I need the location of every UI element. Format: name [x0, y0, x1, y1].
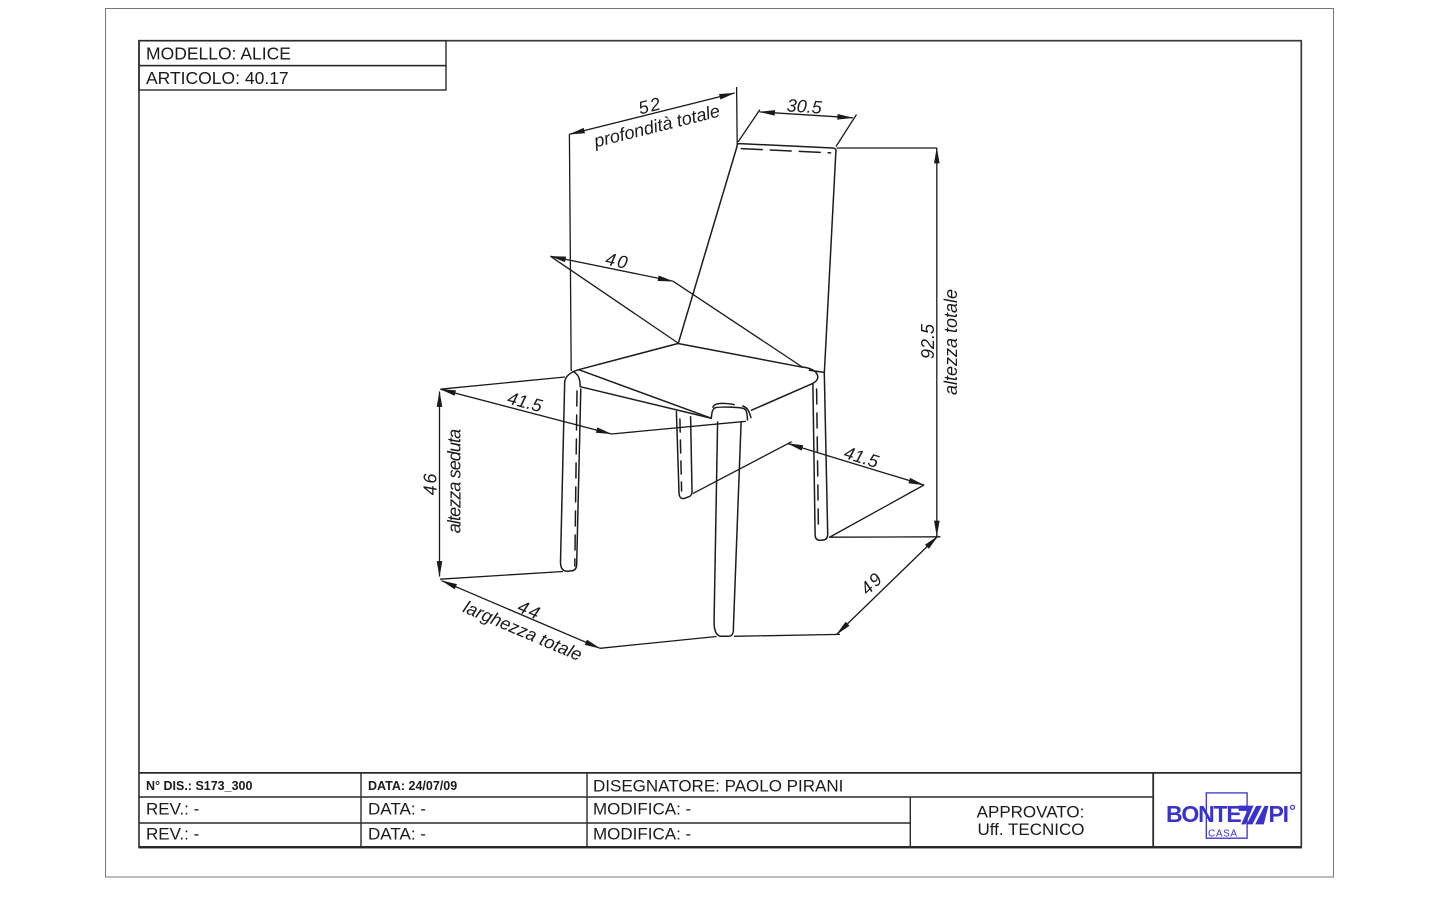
svg-text:DATA: -: DATA: - — [368, 800, 426, 819]
svg-text:DATA: 24/07/09: DATA: 24/07/09 — [368, 779, 457, 793]
svg-text:DATA: -: DATA: - — [368, 825, 426, 844]
svg-text:PI: PI — [1269, 801, 1288, 827]
svg-text:altezza seduta: altezza seduta — [445, 429, 465, 533]
svg-text:DISEGNATORE: PAOLO PIRANI: DISEGNATORE: PAOLO PIRANI — [593, 777, 843, 796]
svg-text:CASA: CASA — [1208, 829, 1238, 840]
svg-text:ARTICOLO: 40.17: ARTICOLO: 40.17 — [146, 68, 289, 88]
svg-text:MODELLO: ALICE: MODELLO: ALICE — [146, 43, 291, 63]
svg-text:MODIFICA: -: MODIFICA: - — [593, 800, 691, 819]
svg-text:altezza totale: altezza totale — [941, 289, 961, 395]
svg-text:APPROVATO:: APPROVATO: — [977, 802, 1085, 821]
svg-text:30.5: 30.5 — [786, 95, 823, 117]
svg-text:MODIFICA: -: MODIFICA: - — [593, 825, 691, 844]
svg-text:REV.: -: REV.: - — [146, 800, 199, 819]
svg-text:REV.: -: REV.: - — [146, 825, 199, 844]
svg-text:92.5: 92.5 — [918, 323, 938, 359]
svg-text:46: 46 — [421, 472, 441, 496]
svg-text:N° DIS.: S173_300: N° DIS.: S173_300 — [146, 779, 252, 793]
svg-text:BONTE: BONTE — [1166, 801, 1241, 827]
svg-text:Uff. TECNICO: Uff. TECNICO — [977, 820, 1084, 839]
